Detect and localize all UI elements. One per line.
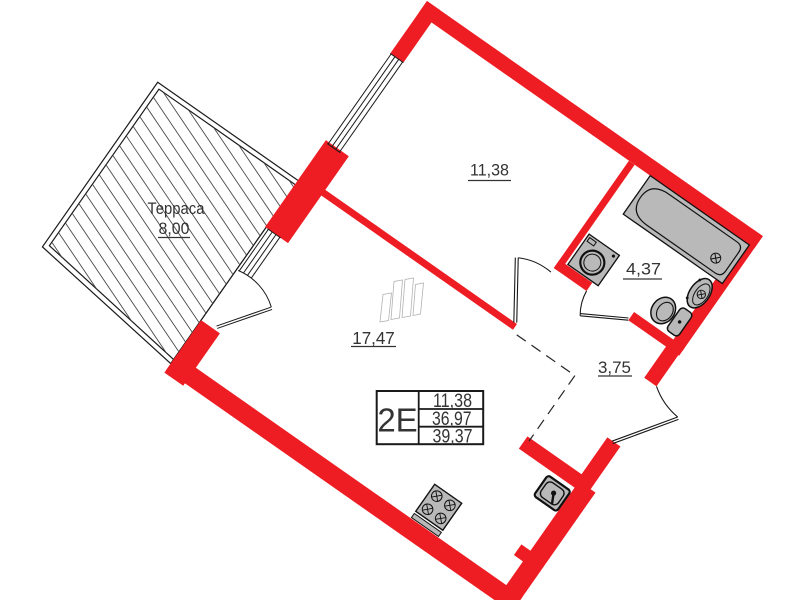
- svg-text:Терраса: Терраса: [148, 199, 205, 218]
- svg-text:8,00: 8,00: [159, 219, 190, 238]
- svg-text:4,37: 4,37: [626, 261, 661, 279]
- svg-text:17,47: 17,47: [352, 328, 395, 348]
- svg-text:2Е: 2Е: [377, 402, 417, 439]
- svg-text:11,38: 11,38: [470, 162, 509, 180]
- svg-text:3,75: 3,75: [598, 359, 631, 377]
- svg-text:39,37: 39,37: [433, 427, 473, 448]
